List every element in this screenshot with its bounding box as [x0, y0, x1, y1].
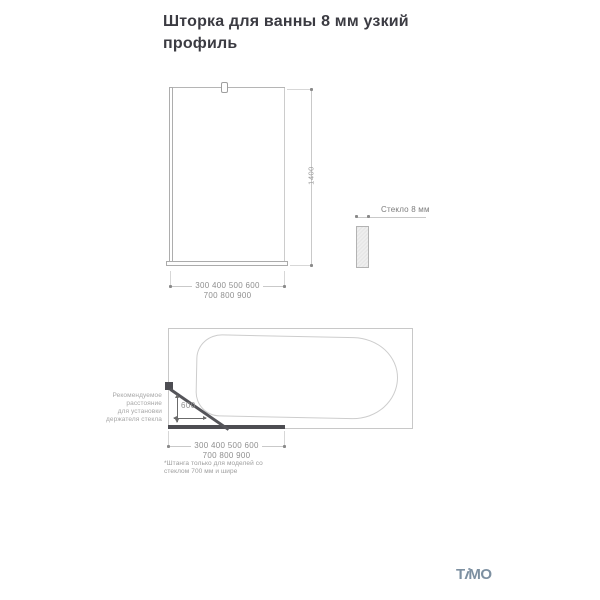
support-bar-footnote: *Штанга только для моделей со стеклом 70… — [164, 460, 263, 476]
brand-logo: TiMO — [456, 566, 492, 584]
holder-note-line: расстояние — [98, 400, 162, 408]
holder-note: Рекомендуемое расстояние для установки д… — [98, 392, 162, 424]
holder-distance-label: 600 — [181, 401, 196, 410]
glass-cross-section — [356, 226, 369, 268]
glass-thickness-label: Стекло 8 мм — [381, 205, 430, 214]
plan-width-dim-row1: 300 400 500 600 — [191, 441, 262, 451]
dim-extension-line — [287, 89, 311, 90]
dim-tick — [310, 88, 313, 91]
bathtub-basin — [195, 334, 399, 420]
panel-top-edge — [172, 87, 285, 88]
front-width-dim-row2: 700 800 900 — [160, 291, 295, 301]
dim-tick — [355, 215, 358, 218]
height-dim-label: 1400 — [307, 159, 316, 193]
footnote-line: *Штанга только для моделей со — [164, 460, 263, 468]
front-width-dim-label: 300 400 500 600 700 800 900 — [160, 281, 295, 300]
panel-narrow-profile — [169, 87, 173, 266]
top-bracket — [221, 82, 228, 93]
product-drawing-page: Шторка для ванны 8 мм узкий профиль 1400… — [0, 0, 600, 600]
plan-width-dim-label: 300 400 500 600 700 800 900 — [158, 441, 295, 460]
dim-extension-line — [290, 265, 311, 266]
plan-width-dim-row2: 700 800 900 — [158, 451, 295, 461]
holder-note-line: держателя стекла — [98, 416, 162, 424]
dim-tick — [367, 215, 370, 218]
holder-note-line: для установки — [98, 408, 162, 416]
horizontal-distance-arrow — [174, 418, 206, 419]
logo-letters-mo: MO — [468, 566, 491, 584]
holder-note-line: Рекомендуемое — [98, 392, 162, 400]
dim-tick — [310, 264, 313, 267]
page-title: Шторка для ванны 8 мм узкий профиль — [163, 11, 455, 55]
panel-right-edge — [284, 88, 285, 262]
panel-bottom-bar — [166, 261, 288, 266]
front-width-dim-row1: 300 400 500 600 — [192, 281, 263, 291]
footnote-line: стеклом 700 мм и шире — [164, 468, 263, 476]
